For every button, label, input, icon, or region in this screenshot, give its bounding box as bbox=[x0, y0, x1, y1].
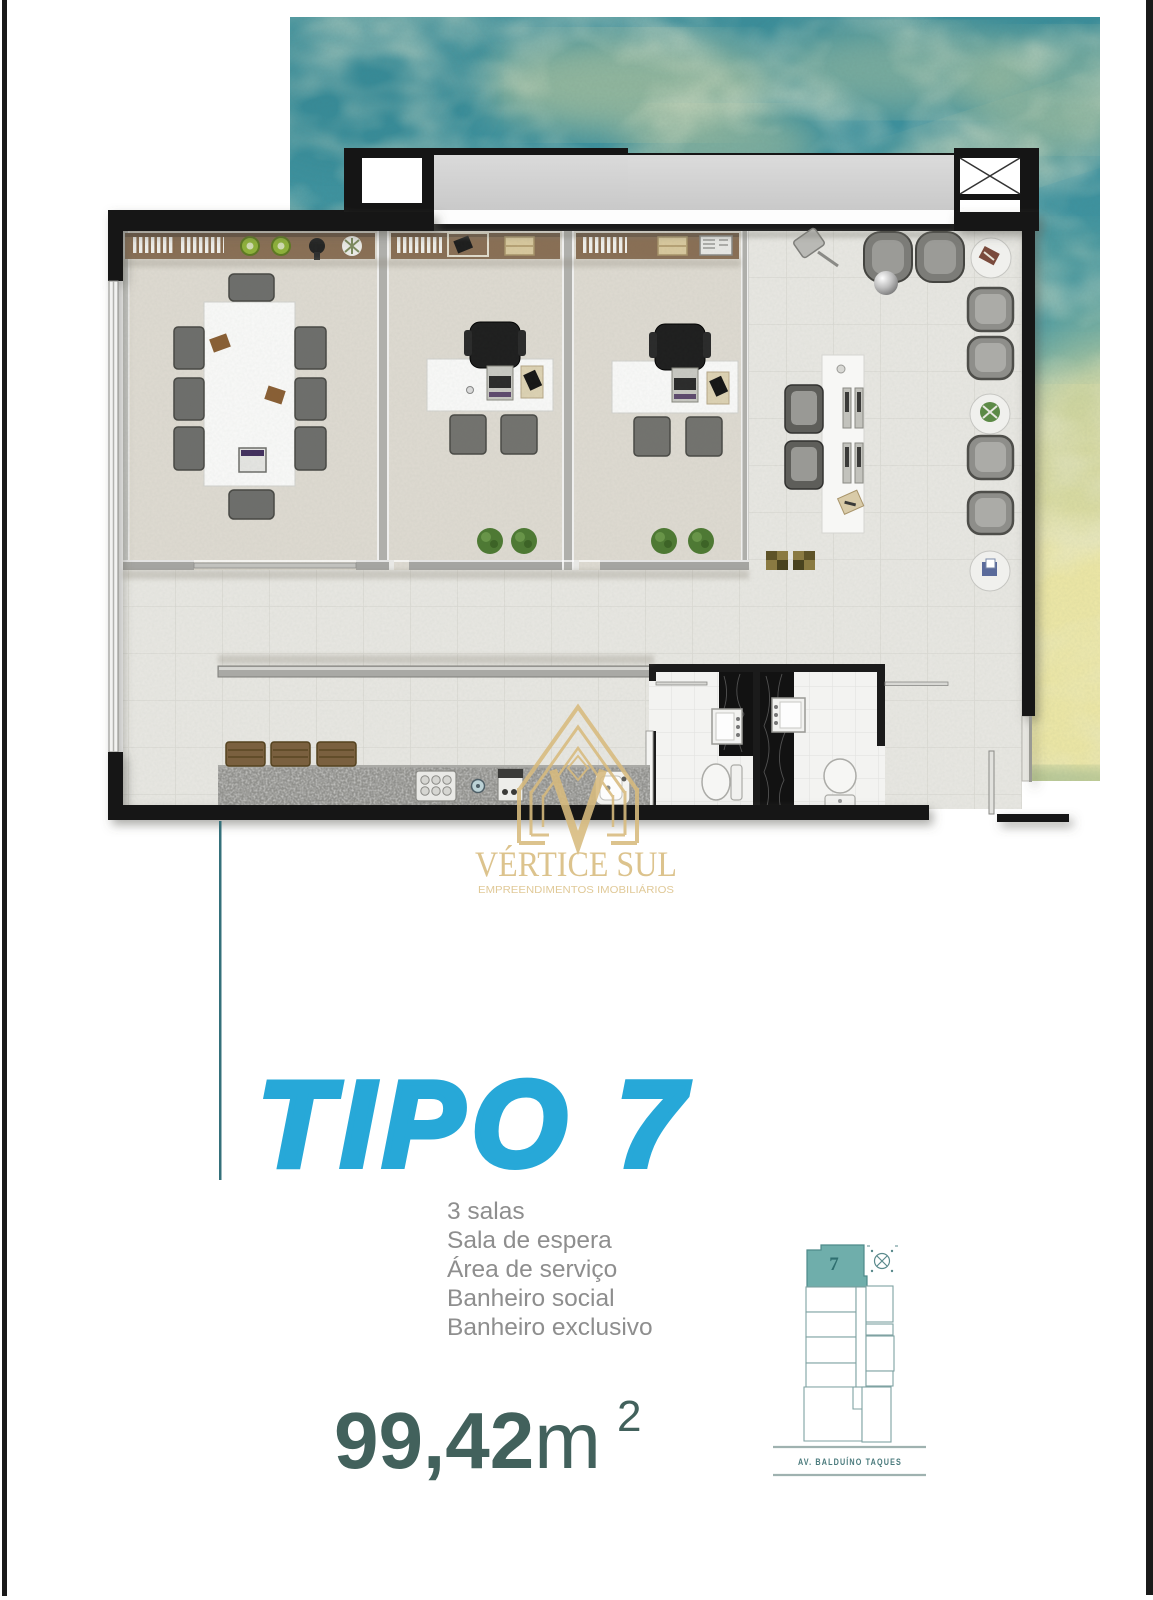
svg-text:3 salas: 3 salas bbox=[447, 1198, 525, 1225]
svg-text:2: 2 bbox=[617, 1392, 641, 1441]
svg-text:VÉRTICE SUL: VÉRTICE SUL bbox=[475, 844, 677, 884]
svg-text:EMPREENDIMENTOS IMOBILIÁRIOS: EMPREENDIMENTOS IMOBILIÁRIOS bbox=[478, 883, 674, 896]
svg-text:99,42m: 99,42m bbox=[334, 1396, 601, 1485]
svg-text:Banheiro social: Banheiro social bbox=[447, 1285, 615, 1312]
svg-text:AV. BALDUÍNO TAQUES: AV. BALDUÍNO TAQUES bbox=[798, 1457, 902, 1468]
svg-text:Sala de espera: Sala de espera bbox=[447, 1227, 612, 1254]
svg-text:Banheiro exclusivo: Banheiro exclusivo bbox=[447, 1314, 653, 1341]
svg-text:TIPO 7: TIPO 7 bbox=[258, 1056, 692, 1192]
svg-text:7: 7 bbox=[829, 1254, 839, 1275]
svg-text:Área de serviço: Área de serviço bbox=[447, 1256, 617, 1283]
